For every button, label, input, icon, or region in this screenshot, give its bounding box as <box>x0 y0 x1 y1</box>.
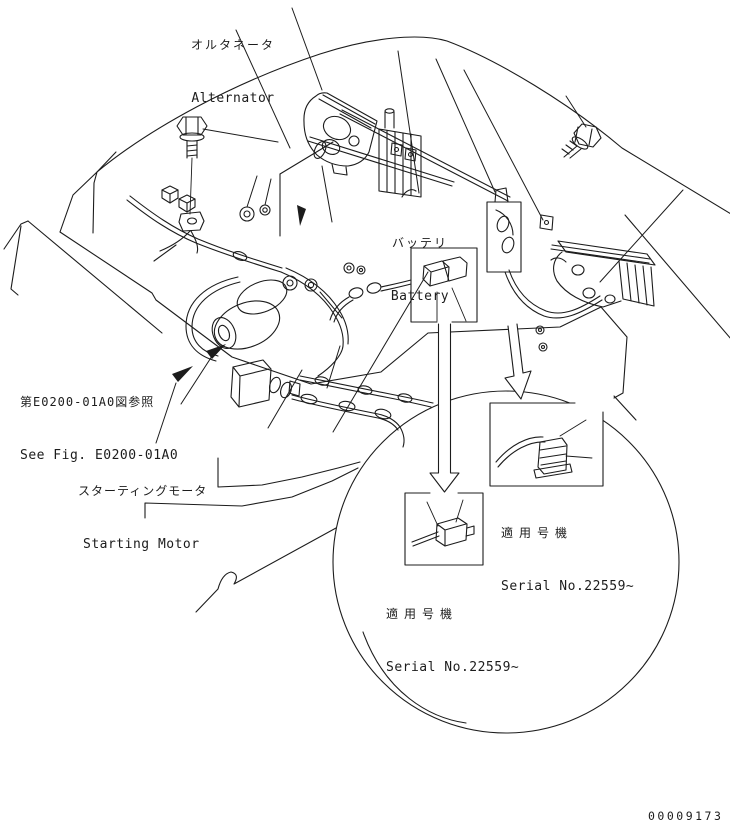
nut <box>260 205 270 215</box>
starting-motor-label-en: Starting Motor <box>78 537 207 553</box>
serial-note-left: 適用号機 Serial No.22559~ <box>386 569 519 714</box>
resistor-bracket <box>540 215 655 307</box>
nut <box>539 343 547 351</box>
alternator-label-en: Alternator <box>178 91 288 107</box>
alternator-label: オルタネータ Alternator <box>178 0 288 145</box>
callout-arrow-left <box>430 324 459 492</box>
pointer-arrow <box>206 344 226 359</box>
document-number: 00009173 <box>648 809 723 823</box>
serial-note-left-en: Serial No.22559~ <box>386 660 519 676</box>
motor-bracket <box>231 360 271 407</box>
battery-mount-bracket <box>487 188 602 351</box>
fins <box>619 261 654 306</box>
detail-box-right <box>490 403 603 486</box>
detail-box-left <box>405 493 483 565</box>
solenoid <box>232 273 291 320</box>
callout-arrow-right <box>505 324 531 399</box>
washer <box>344 263 354 273</box>
serial-note-left-ja: 適用号機 <box>386 607 519 621</box>
alternator-assembly <box>304 93 377 175</box>
battery-label-en: Battery <box>380 289 460 305</box>
serial-note-right-ja: 適用号機 <box>501 526 634 540</box>
step-outline-upper <box>218 458 360 487</box>
battery-label: バッテリ Battery <box>380 198 460 343</box>
left-panel-outline <box>4 221 162 333</box>
starting-motor-label-ja: スターティングモータ <box>78 484 207 498</box>
mounting-bolt-right <box>562 124 601 158</box>
washer <box>240 207 254 221</box>
harness-rail <box>340 110 510 201</box>
serial-note-right: 適用号機 Serial No.22559~ <box>501 488 634 633</box>
serial-note-right-en: Serial No.22559~ <box>501 579 634 595</box>
battery-label-ja: バッテリ <box>380 236 460 250</box>
fender-edge <box>196 528 336 612</box>
starting-motor-label: スターティングモータ Starting Motor <box>78 446 207 591</box>
see-fig-leader <box>181 353 214 404</box>
fasteners <box>162 186 365 291</box>
pointer-arrow <box>297 205 306 226</box>
parts-diagram-page: オルタネータ Alternator バッテリ Battery 第E0200-01… <box>0 0 730 825</box>
see-fig-label-ja: 第E0200-01A0図参照 <box>20 395 178 409</box>
nut <box>357 266 365 274</box>
cable-lug <box>348 286 364 299</box>
alternator-label-ja: オルタネータ <box>178 38 288 52</box>
nut <box>536 326 544 334</box>
